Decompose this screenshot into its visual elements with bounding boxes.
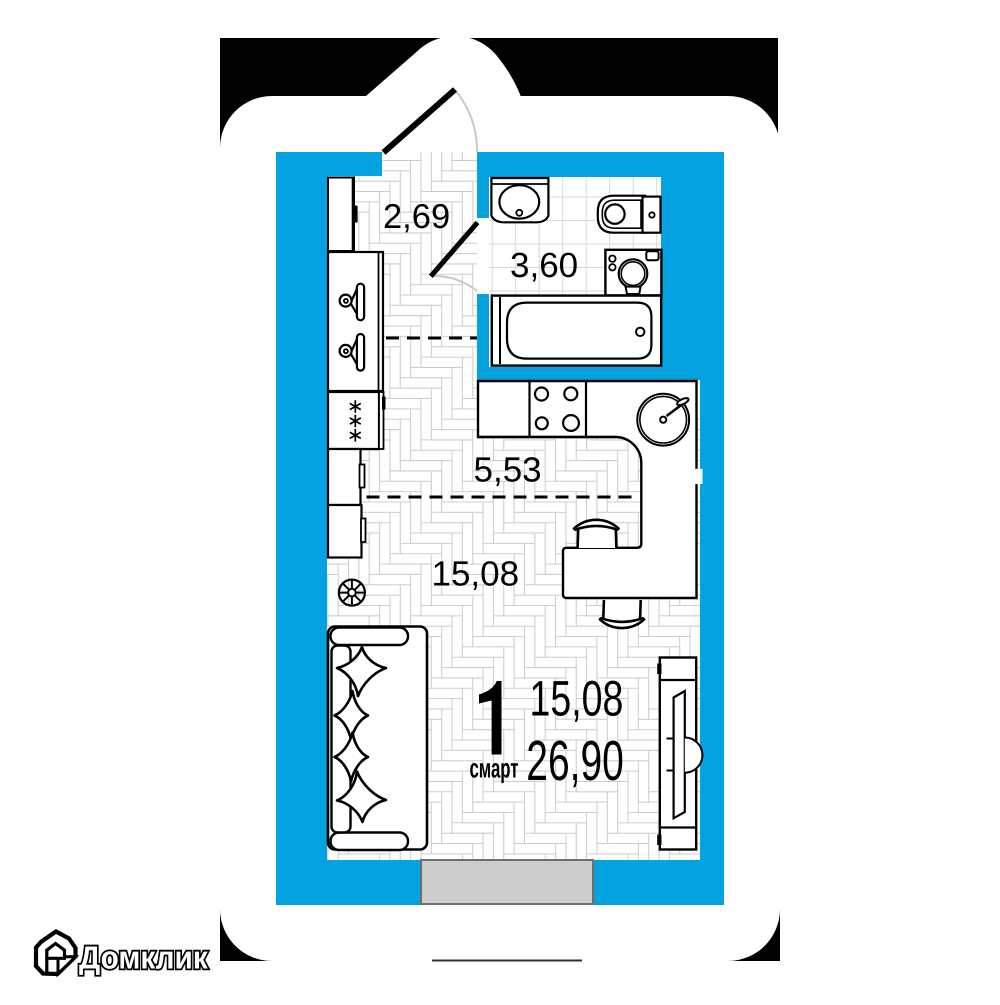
svg-text:5,53: 5,53 (474, 451, 542, 490)
svg-text:26,90: 26,90 (526, 729, 624, 792)
svg-text:3,60: 3,60 (510, 246, 578, 285)
svg-text:Домклик: Домклик (79, 940, 209, 976)
svg-text:2,69: 2,69 (383, 198, 450, 236)
svg-text:15,08: 15,08 (432, 555, 520, 594)
svg-text:15,08: 15,08 (530, 670, 624, 726)
svg-text:смарт: смарт (470, 754, 519, 784)
